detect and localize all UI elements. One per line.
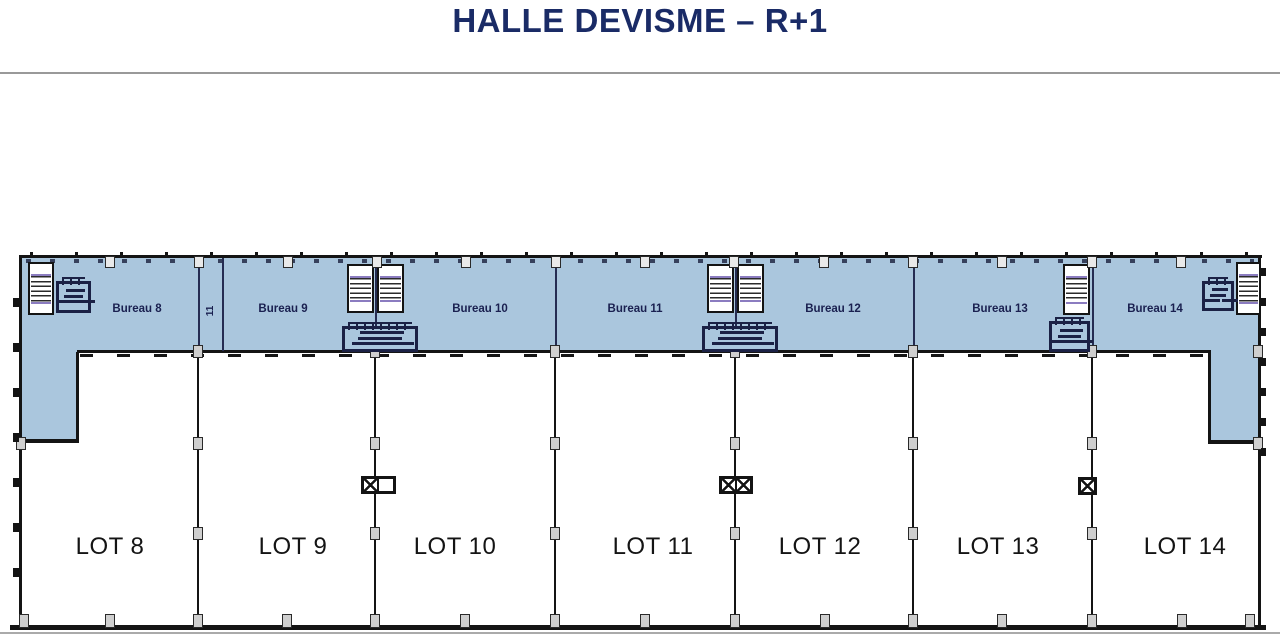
band-divider-line [222, 258, 224, 351]
stair-treads [1066, 276, 1087, 304]
staircase [1063, 264, 1090, 315]
band-divider-line [198, 258, 200, 351]
stair-treads [31, 274, 51, 304]
wall-tick [1261, 328, 1266, 336]
column-marker [370, 527, 380, 540]
facade-tick-strip [30, 252, 1250, 255]
wall-tick [1261, 298, 1266, 306]
column-marker [370, 614, 380, 628]
x-mark [364, 479, 377, 491]
band-bottom-wall [77, 350, 1211, 353]
stair-treads [1239, 274, 1258, 304]
sanitary-block [1049, 321, 1090, 352]
band-bottom-dashed-partition [80, 354, 1208, 357]
x-mark [722, 479, 735, 491]
column-marker [193, 614, 203, 628]
staircase [737, 264, 764, 313]
column-marker [550, 437, 560, 450]
column-marker [105, 614, 115, 628]
ground-line [0, 632, 1280, 634]
staircase [377, 264, 404, 313]
lot-label: LOT 14 [1144, 533, 1227, 561]
lot-label: LOT 11 [613, 533, 694, 561]
column-marker [282, 614, 292, 628]
left-extension-right-wall [76, 352, 79, 442]
wall-tick [13, 523, 19, 532]
column-marker [550, 527, 560, 540]
lot-divider-line [554, 352, 556, 628]
facade-tab [908, 256, 918, 268]
bureau-label: Bureau 12 [805, 303, 861, 315]
staircase [28, 262, 54, 315]
column-marker [193, 527, 203, 540]
column-marker [730, 527, 740, 540]
column-marker [460, 614, 470, 628]
wall-tick [13, 298, 19, 307]
wall-tick [1261, 358, 1266, 366]
column-marker [908, 345, 918, 358]
staircase [347, 264, 374, 313]
stair-treads [380, 276, 401, 302]
lot-divider-line [912, 352, 914, 628]
column-marker [730, 614, 740, 628]
lot-label: LOT 13 [957, 533, 1040, 561]
bureau-label: Bureau 8 [112, 303, 161, 315]
office-band-right-extension [1211, 352, 1258, 441]
wall-tick [1261, 448, 1266, 456]
facade-tab [997, 256, 1007, 268]
column-marker [19, 614, 29, 628]
lot-label: LOT 10 [414, 533, 497, 561]
stair-treads [710, 276, 731, 302]
bureau-label: Bureau 14 [1127, 303, 1183, 315]
corridor-label: 11 [197, 297, 223, 325]
column-marker [997, 614, 1007, 628]
office-band-left-extension [22, 352, 76, 440]
bureau-label: Bureau 11 [608, 303, 663, 315]
facade-tab [640, 256, 650, 268]
bureau-label: Bureau 13 [972, 303, 1028, 315]
shaft-symbol [719, 476, 753, 494]
column-marker [1087, 527, 1097, 540]
wall-tick [13, 343, 19, 352]
facade-tab [819, 256, 829, 268]
floor-plan: 11 Bureau 8Bureau 9Bureau 10Bureau 11Bur… [0, 0, 1280, 637]
x-mark [735, 479, 750, 491]
shaft-empty-cell [377, 479, 393, 491]
facade-tab [1176, 256, 1186, 268]
band-divider-line [913, 258, 915, 351]
shaft-symbol [361, 476, 396, 494]
bureau-label: Bureau 9 [258, 303, 307, 315]
wall-tick [1261, 388, 1266, 396]
wall-tick [13, 433, 19, 442]
column-marker [193, 345, 203, 358]
staircase [707, 264, 734, 313]
column-marker [1087, 614, 1097, 628]
sanitary-block [56, 281, 91, 313]
facade-tab [105, 256, 115, 268]
column-marker [1087, 437, 1097, 450]
lot-label: LOT 12 [779, 533, 862, 561]
facade-tab [283, 256, 293, 268]
right-extension-left-wall [1208, 352, 1211, 442]
column-marker [370, 437, 380, 450]
band-divider-line [555, 258, 557, 351]
sanitary-block [342, 326, 418, 352]
facade-tab [194, 256, 204, 268]
column-marker [908, 527, 918, 540]
bureau-label: Bureau 10 [452, 303, 508, 315]
facade-tab [372, 256, 382, 268]
band-divider-line [1092, 258, 1094, 351]
wall-tick [13, 388, 19, 397]
x-mark [1081, 480, 1094, 492]
wall-tick [1261, 418, 1266, 426]
sanitary-block [1202, 281, 1234, 311]
lot-label: LOT 8 [76, 533, 145, 561]
column-marker [730, 437, 740, 450]
column-marker [908, 614, 918, 628]
facade-tab [729, 256, 739, 268]
stair-treads [740, 276, 761, 302]
staircase [1236, 262, 1261, 315]
lot-divider-line [197, 352, 199, 628]
wall-tick [13, 478, 19, 487]
column-marker [640, 614, 650, 628]
facade-tab [551, 256, 561, 268]
facade-tab [1087, 256, 1097, 268]
column-marker [820, 614, 830, 628]
lot-label: LOT 9 [259, 533, 328, 561]
stair-treads [350, 276, 371, 302]
column-marker [1177, 614, 1187, 628]
shaft-symbol [1078, 477, 1097, 495]
wall-tick [1261, 268, 1266, 276]
column-marker [550, 345, 560, 358]
column-marker [1245, 614, 1255, 628]
column-marker [1253, 345, 1263, 358]
column-marker [193, 437, 203, 450]
sanitary-block [702, 326, 778, 352]
column-marker [550, 614, 560, 628]
column-marker [908, 437, 918, 450]
facade-tab [461, 256, 471, 268]
left-extension-bottom-wall [19, 439, 79, 443]
wall-tick [13, 568, 19, 577]
